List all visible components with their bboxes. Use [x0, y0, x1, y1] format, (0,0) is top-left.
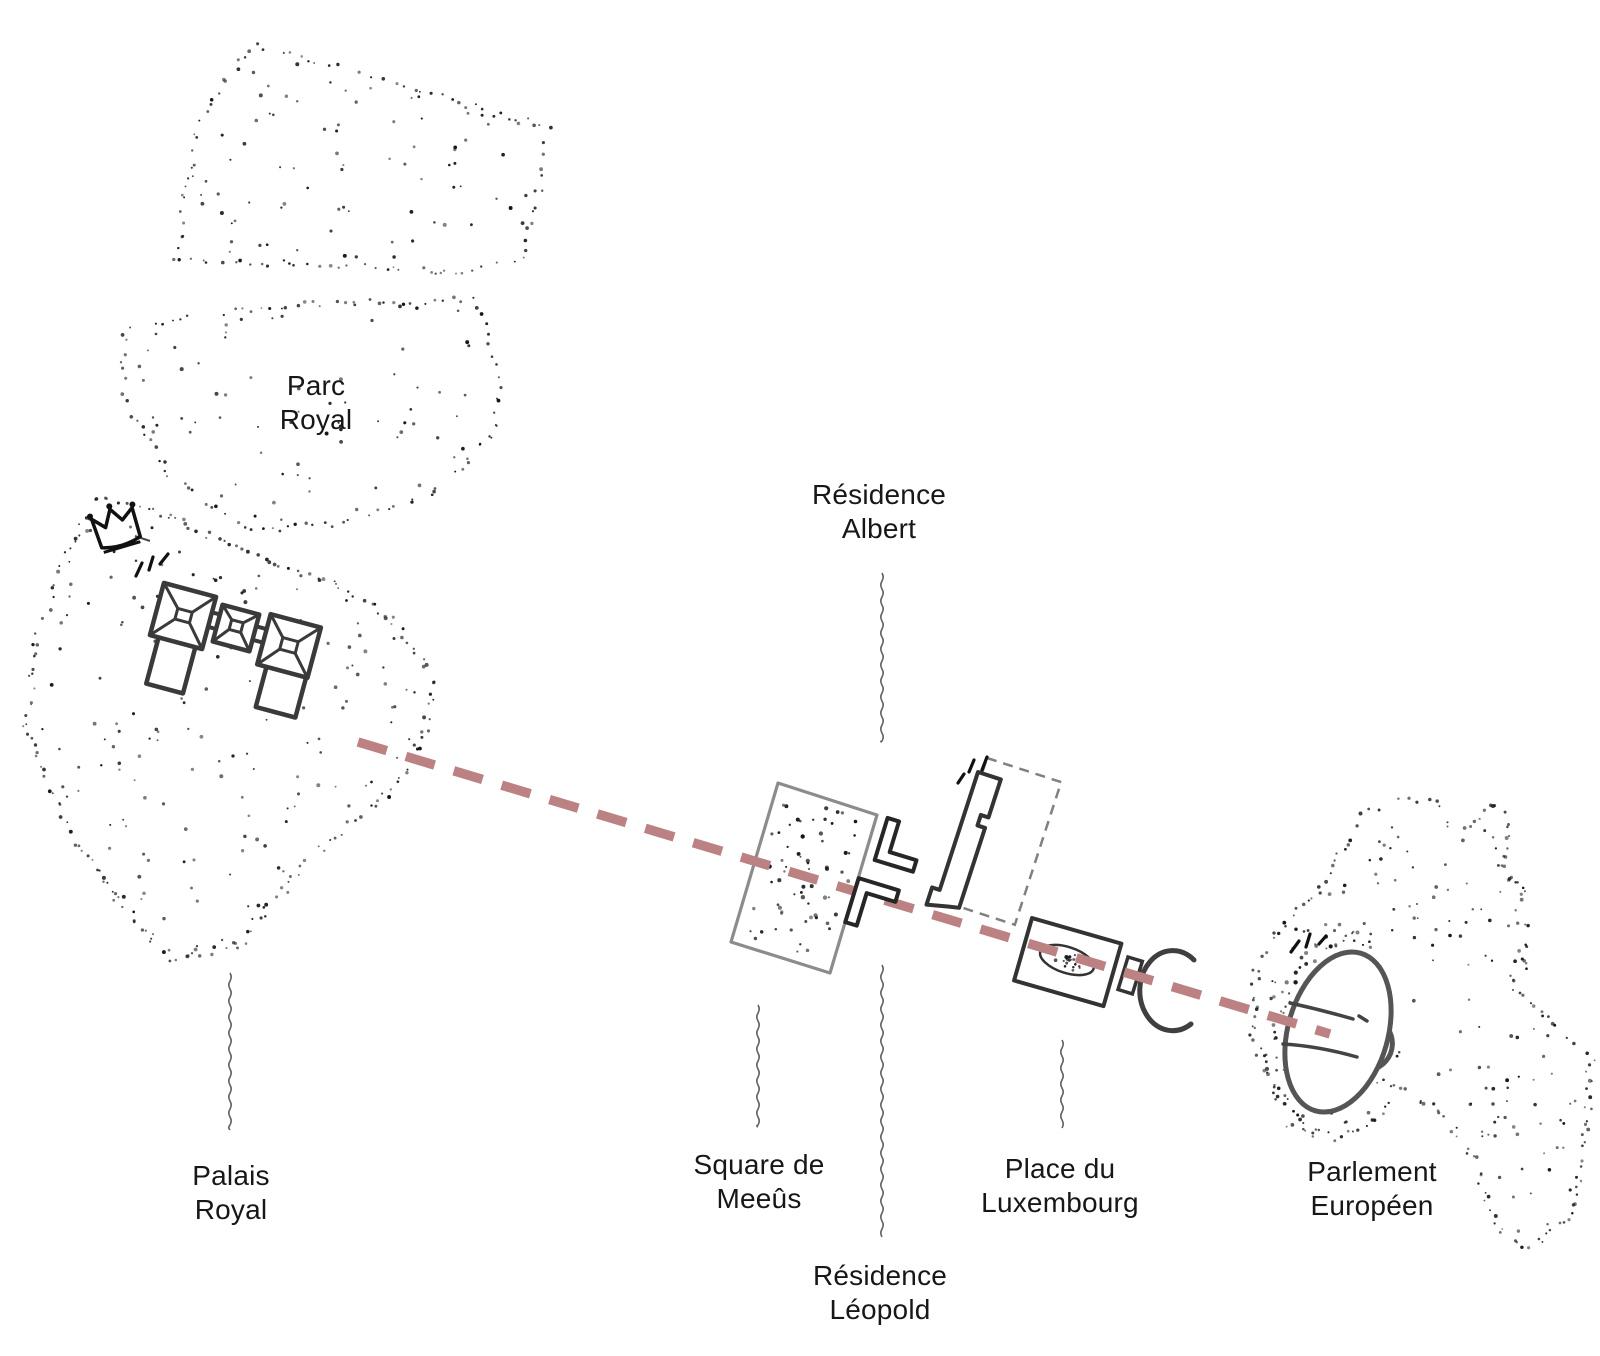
parc-royal-stipple	[120, 42, 553, 532]
label-line: Albert	[812, 512, 946, 546]
label-line: Léopold	[813, 1293, 947, 1327]
sparkle-marks-hemicycle	[1291, 934, 1326, 952]
label-residence-leopold: Résidence Léopold	[813, 1259, 947, 1327]
axis-dashed-line	[358, 742, 1330, 1034]
label-residence-albert: Résidence Albert	[812, 478, 946, 546]
parliament-hemicycle	[1267, 939, 1408, 1124]
tower-building	[927, 770, 1001, 915]
palace-pavilion	[257, 614, 321, 678]
label-line: Parc	[280, 369, 353, 403]
label-line: Résidence	[812, 478, 946, 512]
palace-pavilion	[150, 583, 216, 649]
palais-royal-stipple	[22, 497, 435, 963]
label-line: Meeûs	[693, 1182, 824, 1216]
building-block-upper	[875, 818, 926, 872]
label-parlement-europeen: Parlement Européen	[1307, 1155, 1436, 1223]
leader-squiggle	[881, 573, 883, 742]
label-palais-royal: Palais Royal	[192, 1159, 269, 1227]
label-line: Européen	[1307, 1189, 1436, 1223]
label-line: Royal	[192, 1193, 269, 1227]
label-parc-royal: Parc Royal	[280, 369, 353, 437]
label-line: Royal	[280, 403, 353, 437]
label-line: Palais	[192, 1159, 269, 1193]
leader-squiggle	[757, 1005, 759, 1127]
label-line: Square de	[693, 1148, 824, 1182]
label-square-de-meeus: Square de Meeûs	[693, 1148, 824, 1216]
label-place-du-luxembourg: Place du Luxembourg	[981, 1152, 1139, 1220]
palais-royal-building	[138, 583, 322, 724]
label-line: Résidence	[813, 1259, 947, 1293]
sketch-map: Parc Royal Résidence Albert Palais Royal…	[0, 0, 1600, 1356]
label-line: Place du	[981, 1152, 1139, 1186]
crown-icon	[85, 498, 144, 554]
label-line: Luxembourg	[981, 1186, 1139, 1220]
leader-squiggle	[229, 973, 231, 1130]
label-line: Parlement	[1307, 1155, 1436, 1189]
palace-pavilion	[213, 605, 260, 652]
leader-squiggle	[1061, 1040, 1063, 1128]
leader-squiggle	[881, 965, 883, 1237]
